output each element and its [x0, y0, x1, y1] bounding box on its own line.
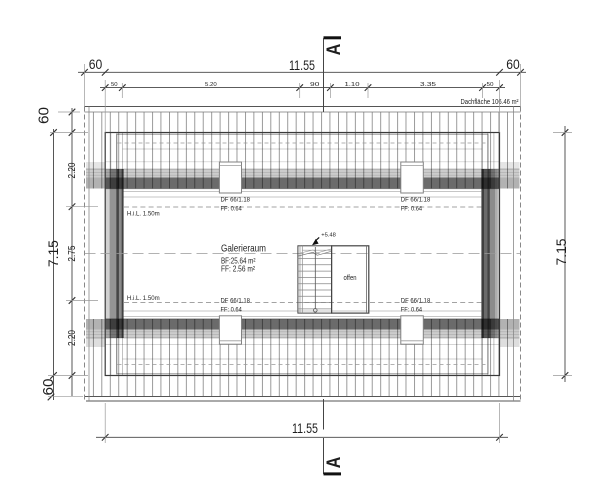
svg-text:2.20: 2.20 — [66, 162, 78, 178]
svg-text:H.i.L. 1.50m: H.i.L. 1.50m — [127, 211, 160, 218]
svg-text:3.35: 3.35 — [420, 82, 436, 88]
svg-text:FF: 0.64: FF: 0.64 — [401, 307, 423, 314]
svg-text:1.10: 1.10 — [345, 82, 360, 88]
svg-text:5.20: 5.20 — [205, 82, 217, 88]
svg-text:60: 60 — [36, 107, 53, 124]
svg-text:FF: 0.64: FF: 0.64 — [401, 205, 423, 212]
svg-text:+5.48: +5.48 — [321, 233, 336, 239]
svg-text:DF 66/1.18: DF 66/1.18 — [401, 297, 431, 304]
svg-text:11.55: 11.55 — [292, 420, 318, 436]
svg-text:60: 60 — [40, 379, 57, 396]
svg-text:60: 60 — [506, 56, 520, 72]
svg-text:60: 60 — [89, 56, 103, 72]
svg-text:DF 66/1.18: DF 66/1.18 — [401, 196, 431, 203]
svg-text:50: 50 — [111, 82, 118, 88]
svg-text:A: A — [324, 44, 345, 56]
svg-text:2.20: 2.20 — [66, 330, 78, 346]
svg-text:7.15: 7.15 — [45, 240, 61, 267]
svg-text:FF: 0.64: FF: 0.64 — [221, 205, 243, 212]
svg-text:A: A — [324, 457, 345, 469]
svg-text:DF 66/1.18: DF 66/1.18 — [221, 196, 251, 203]
svg-text:FF: 0.64: FF: 0.64 — [221, 307, 243, 314]
svg-text:FF: 2.56 m²: FF: 2.56 m² — [221, 264, 255, 273]
svg-text:2.75: 2.75 — [66, 245, 78, 261]
svg-text:DF 66/1.18: DF 66/1.18 — [221, 297, 251, 304]
svg-text:7.15: 7.15 — [553, 238, 569, 265]
svg-text:Dachfläche 106.46 m²: Dachfläche 106.46 m² — [461, 99, 520, 106]
svg-text:50: 50 — [487, 82, 494, 88]
svg-text:90: 90 — [310, 82, 319, 88]
svg-text:offen: offen — [344, 275, 357, 282]
svg-text:Galerieraum: Galerieraum — [221, 242, 266, 254]
svg-text:11.55: 11.55 — [289, 57, 315, 73]
svg-text:H.i.L. 1.50m: H.i.L. 1.50m — [127, 295, 160, 302]
